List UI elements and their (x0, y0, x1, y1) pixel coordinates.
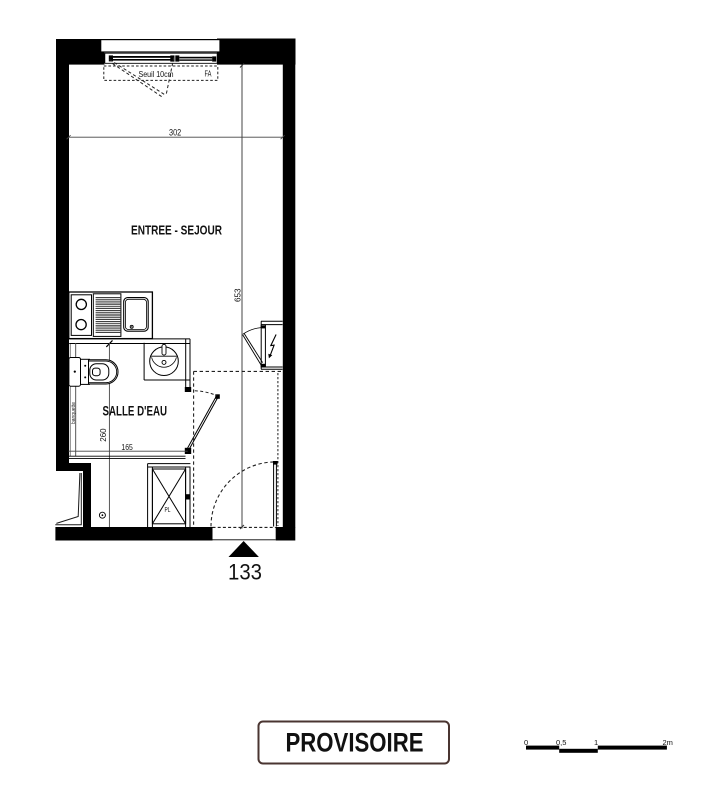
svg-text:FA: FA (205, 70, 212, 79)
svg-text:1: 1 (594, 738, 598, 747)
svg-text:banquette: banquette (71, 402, 77, 424)
svg-text:653: 653 (232, 288, 242, 302)
svg-text:2m: 2m (663, 738, 673, 747)
svg-text:PL: PL (165, 507, 171, 514)
svg-text:302: 302 (169, 127, 181, 138)
svg-text:0,5: 0,5 (556, 738, 566, 747)
svg-text:PROVISOIRE: PROVISOIRE (286, 728, 424, 758)
svg-text:Seuil 10cm: Seuil 10cm (139, 69, 174, 79)
svg-text:SALLE D'EAU: SALLE D'EAU (103, 402, 168, 418)
svg-text:ENTREE - SEJOUR: ENTREE - SEJOUR (131, 222, 222, 237)
svg-text:165: 165 (121, 442, 133, 452)
svg-text:260: 260 (98, 428, 108, 441)
svg-text:0: 0 (524, 738, 528, 747)
svg-text:133: 133 (228, 559, 262, 584)
